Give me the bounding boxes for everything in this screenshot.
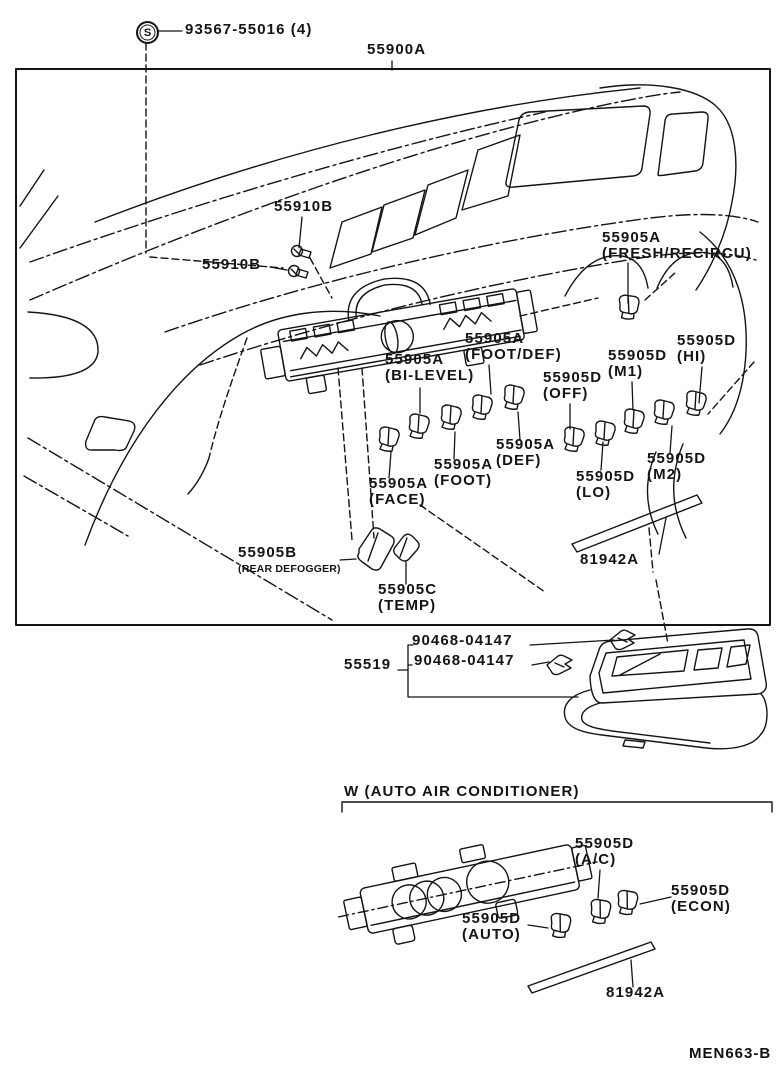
- bezel-55519: [564, 629, 767, 749]
- screw-symbol-badge: S: [136, 21, 159, 44]
- screw-icon-2: [289, 266, 309, 279]
- auto-ac-section-title: W (AUTO AIR CONDITIONER): [344, 784, 580, 800]
- button-m2: [654, 400, 674, 424]
- callout-foot-def: 55905A (FOOT/DEF): [465, 331, 562, 363]
- callout-fresh-recircu: 55905A (FRESH/RECIRCU): [602, 230, 752, 262]
- button-ac: [590, 899, 611, 925]
- callout-temp: 55905C (TEMP): [378, 582, 437, 614]
- button-temp: [394, 534, 419, 561]
- button-off: [564, 427, 584, 451]
- callout-bi-level: 55905A (BI-LEVEL): [385, 352, 474, 384]
- callout-rear-defogger: 55905B (REAR DEFOGGER): [238, 545, 341, 577]
- callout-m1: 55905D (M1): [608, 348, 667, 380]
- button-auto: [550, 913, 571, 939]
- parts-diagram-page: S 93567-55016 (4) 55900A 55910B 55910B 5…: [0, 0, 784, 1092]
- button-bi-level: [409, 414, 429, 438]
- button-lo: [595, 421, 615, 445]
- callout-clip-2: 90468-04147: [414, 653, 515, 669]
- callout-face: 55905A (FACE): [369, 476, 428, 508]
- auto-ac-buttons: [550, 890, 638, 939]
- callout-auto: 55905D (AUTO): [462, 911, 521, 943]
- side-window-1: [506, 106, 650, 187]
- auto-ac-section-bracket: [342, 802, 772, 812]
- callout-def: 55905A (DEF): [496, 437, 555, 469]
- callout-m2: 55905D (M2): [647, 451, 706, 483]
- button-hi: [686, 391, 706, 415]
- diagram-line-art: [0, 0, 784, 1092]
- button-face: [379, 427, 399, 451]
- clip-icon-2: [547, 655, 572, 674]
- callout-55910b-1: 55910B: [274, 199, 333, 215]
- callout-81942a-main: 81942A: [580, 552, 639, 568]
- steering-oval: [28, 312, 98, 378]
- callout-55910b-2: 55910B: [202, 257, 261, 273]
- button-econ: [617, 890, 638, 916]
- callout-econ: 55905D (ECON): [671, 883, 731, 915]
- drawing-code: MEN663-B: [689, 1045, 771, 1062]
- light-bar-strip-main: [572, 495, 702, 552]
- callout-foot: 55905A (FOOT): [434, 457, 493, 489]
- callout-ac: 55905D (A/C): [575, 836, 634, 868]
- side-window-2: [658, 112, 708, 176]
- button-def: [504, 385, 524, 409]
- button-foot: [441, 405, 461, 429]
- window-panes: [330, 135, 520, 268]
- callout-hi: 55905D (HI): [677, 333, 736, 365]
- button-foot-def: [472, 395, 492, 419]
- callout-off: 55905D (OFF): [543, 370, 602, 402]
- button-m1: [624, 409, 644, 433]
- callout-lo: 55905D (LO): [576, 469, 635, 501]
- knee-bolster-handle: [86, 417, 135, 451]
- button-fresh-recircu: [619, 294, 641, 320]
- screw-icon-1: [292, 246, 312, 259]
- callout-81942a-lower: 81942A: [606, 985, 665, 1001]
- callout-55519: 55519: [344, 657, 391, 673]
- callout-clip-1: 90468-04147: [412, 633, 513, 649]
- callout-assembly-55900a: 55900A: [367, 42, 426, 58]
- callout-screw-part: 93567-55016 (4): [185, 22, 312, 38]
- button-rear-defogger: [358, 528, 394, 570]
